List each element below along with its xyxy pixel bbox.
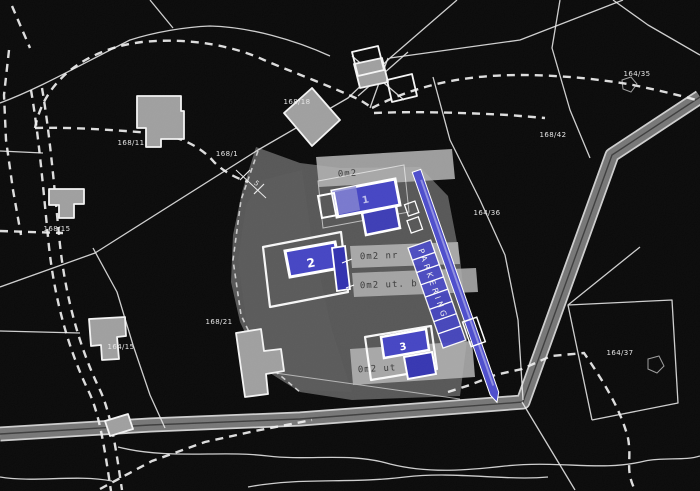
map-canvas: 0m2 0m2 nr 0m2 ut. b 0m2 ut PARKERING 1 [0,0,700,491]
scan-noise [0,0,700,491]
site-plan-map: 0m2 0m2 nr 0m2 ut. b 0m2 ut PARKERING 1 [0,0,700,491]
